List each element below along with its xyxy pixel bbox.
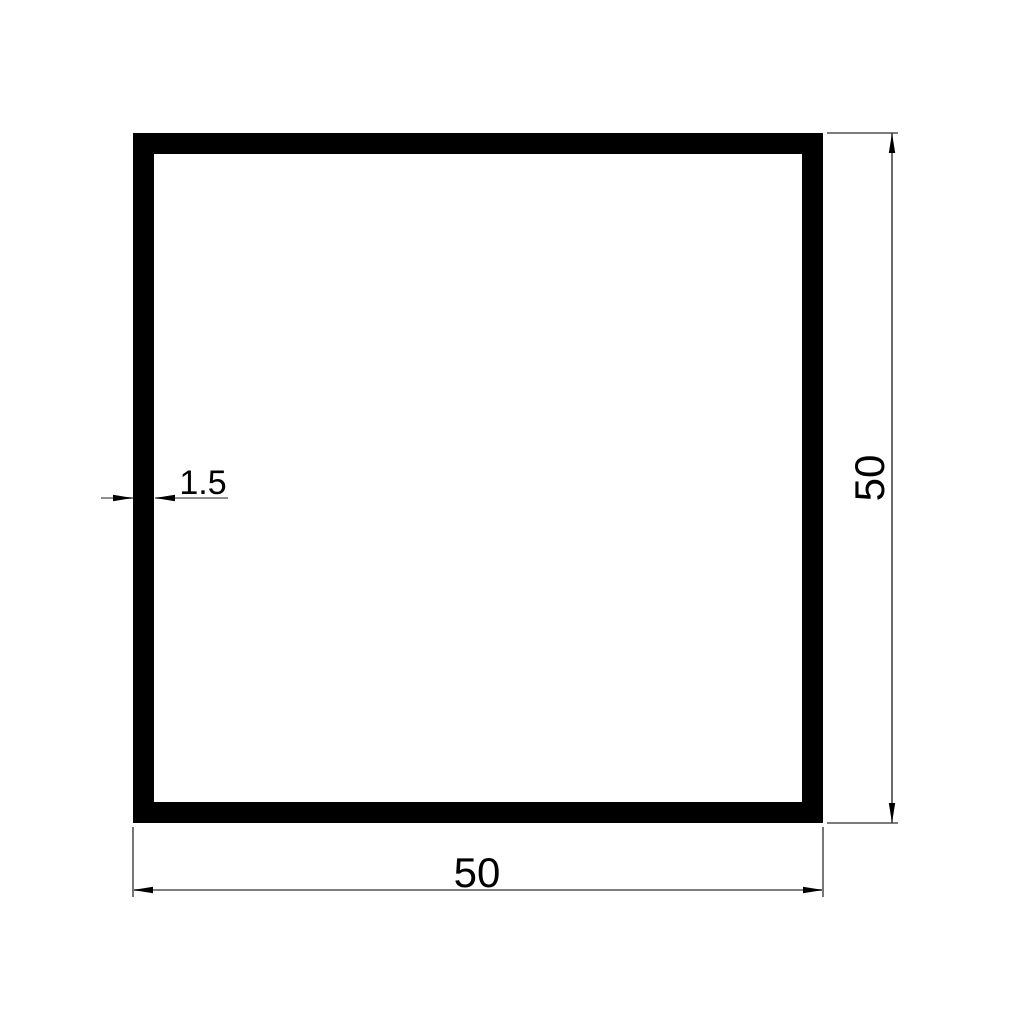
width-dimension-label: 50 — [454, 849, 501, 896]
arrow-right-icon — [803, 887, 823, 893]
arrow-down-icon — [889, 803, 895, 823]
width-dimension: 50 — [133, 827, 823, 897]
thickness-dimension-label: 1.5 — [179, 464, 226, 502]
technical-drawing-canvas: 50 50 1.5 — [0, 0, 1024, 1024]
height-dimension-label: 50 — [846, 455, 893, 502]
arrow-up-icon — [889, 133, 895, 153]
drawing-svg: 50 50 1.5 — [0, 0, 1024, 1024]
profile-cross-section — [144, 144, 813, 813]
arrow-right-small-icon — [113, 495, 133, 501]
arrow-left-icon — [133, 887, 153, 893]
height-dimension: 50 — [827, 133, 898, 823]
